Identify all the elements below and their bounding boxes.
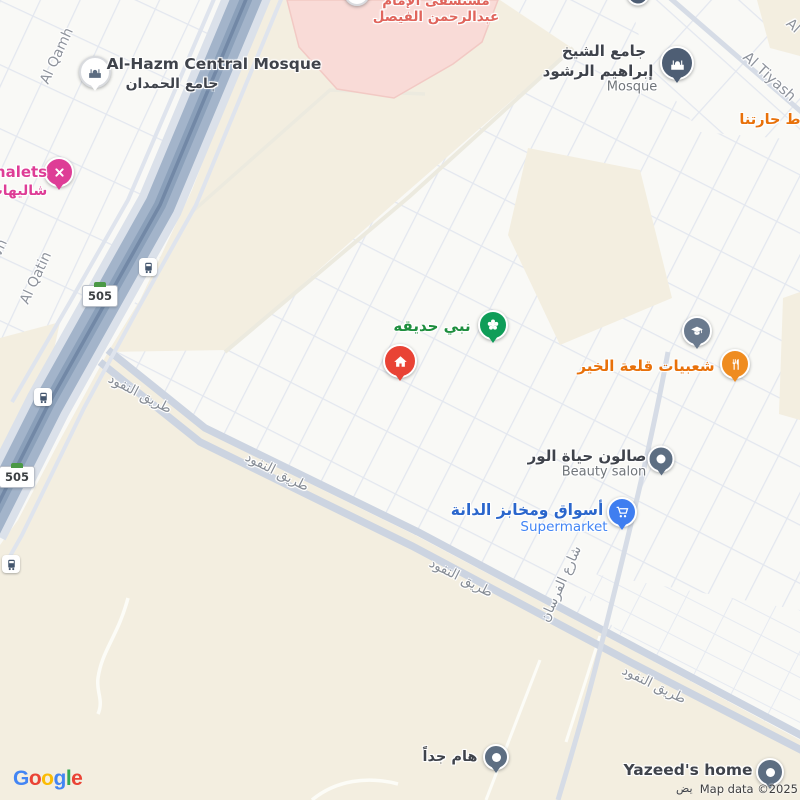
route-505-shield: 505 [82, 285, 118, 307]
dot-icon[interactable] [648, 446, 675, 473]
mosque-icon[interactable] [660, 46, 694, 80]
route-505-number: 505 [5, 470, 29, 484]
poi-label-sheikh-mosque-sub[interactable]: Mosque [607, 80, 657, 95]
poi-label-restaurant[interactable]: شعبيات قلعة الخير [577, 357, 714, 375]
bus-station-icon[interactable] [34, 388, 52, 406]
poi-label-supermarket-ar[interactable]: أسواق ومخابز الدانة [451, 501, 604, 519]
poi-label-beauty-salon-ar[interactable]: صالون حياة الور [528, 447, 647, 465]
poi-label-sheikh-mosque-line2[interactable]: إبراهيم الرشود [543, 62, 654, 80]
poi-label-supermarket-sub[interactable]: Supermarket [520, 519, 607, 535]
poi-label-sheikh-mosque-line1[interactable]: جامع الشيخ [562, 42, 646, 60]
dot-icon[interactable] [483, 744, 509, 770]
poi-label-alhazm-mosque-ar[interactable]: جامع الحمدان [126, 76, 219, 92]
crossed-paddles-icon[interactable] [44, 157, 74, 187]
poi-label-chalets-ar[interactable]: شاليهات [0, 183, 47, 199]
partial-arabic-label: يض [676, 782, 693, 795]
google-logo[interactable]: Google [13, 767, 82, 791]
google-logo-letter: g [54, 767, 66, 790]
home-marker-icon[interactable] [383, 344, 417, 378]
poi-label-yazeeds-home[interactable]: Yazeed's home [623, 761, 752, 779]
poi-label-haratna[interactable]: ط حارتنا [739, 112, 800, 128]
google-logo-letter: e [71, 767, 82, 790]
fork-knife-icon[interactable] [720, 349, 750, 379]
route-505-number: 505 [88, 289, 112, 303]
poi-label-chalets[interactable]: halets [0, 163, 47, 181]
poi-label-hospital-line2[interactable]: عبدالرحمن الفيصل [373, 9, 500, 25]
bus-station-icon[interactable] [139, 258, 157, 276]
shopping-cart-icon[interactable] [607, 497, 637, 527]
poi-label-beauty-salon-sub[interactable]: Beauty salon [562, 465, 647, 480]
map-canvas[interactable]: Al Qamh Al Qatin vn Al Tiyash Al طريق ال… [0, 0, 800, 800]
poi-label-alhazm-mosque[interactable]: Al-Hazm Central Mosque [107, 55, 322, 73]
route-505-shield: 505 [0, 466, 35, 488]
base-map-svg [0, 0, 800, 800]
poi-label-park[interactable]: نبي حديقه [393, 317, 470, 335]
google-logo-letter: o [29, 767, 41, 790]
google-logo-letter: o [41, 767, 53, 790]
flower-icon[interactable] [478, 310, 508, 340]
bus-station-icon[interactable] [2, 555, 20, 573]
graduation-cap-icon[interactable] [682, 316, 712, 346]
google-logo-letter: G [13, 767, 29, 790]
poi-label-important[interactable]: هام جداً [423, 749, 478, 765]
map-data-attribution: Map data ©2025 [700, 782, 798, 796]
poi-label-hospital-line1[interactable]: مستشفى الإمام [382, 0, 489, 9]
